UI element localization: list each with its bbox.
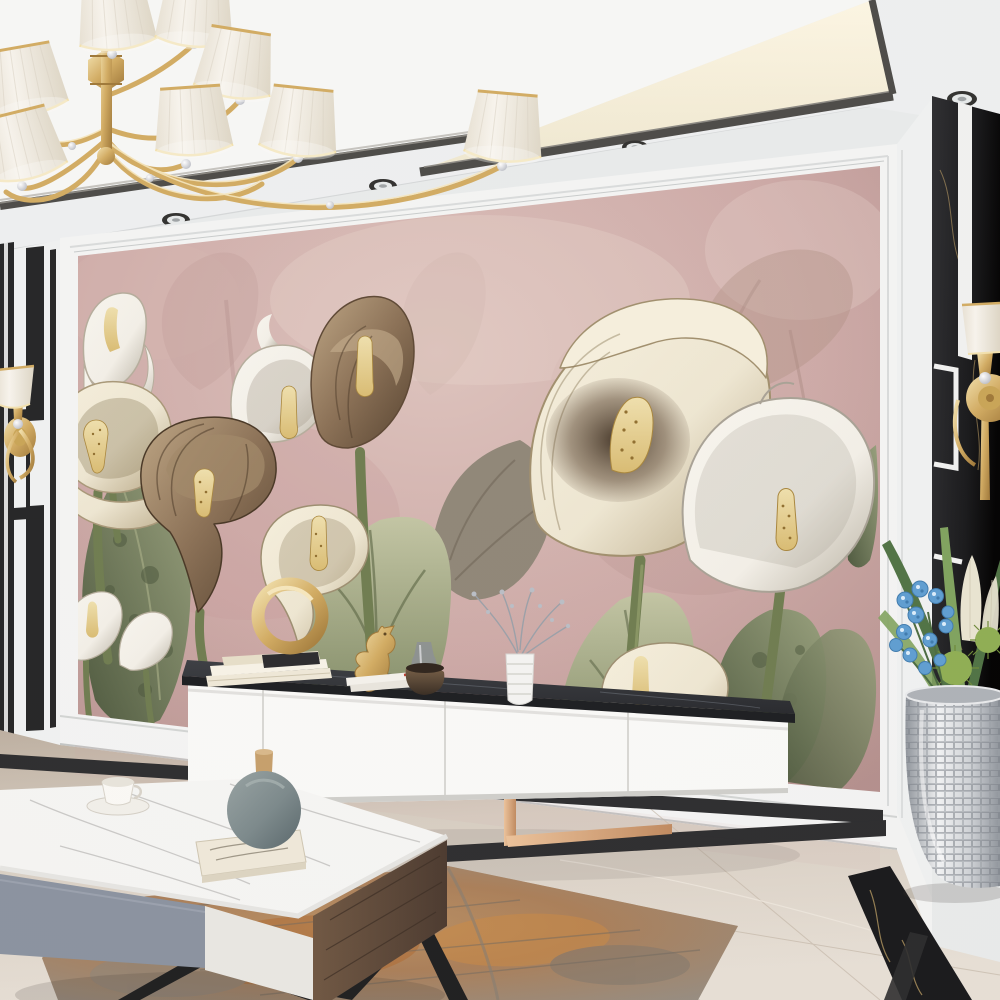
room-render — [0, 0, 1000, 1000]
living-room-scene: Modern luxury living room: dusty-pink ca… — [0, 0, 1000, 1000]
vignette — [0, 0, 1000, 1000]
